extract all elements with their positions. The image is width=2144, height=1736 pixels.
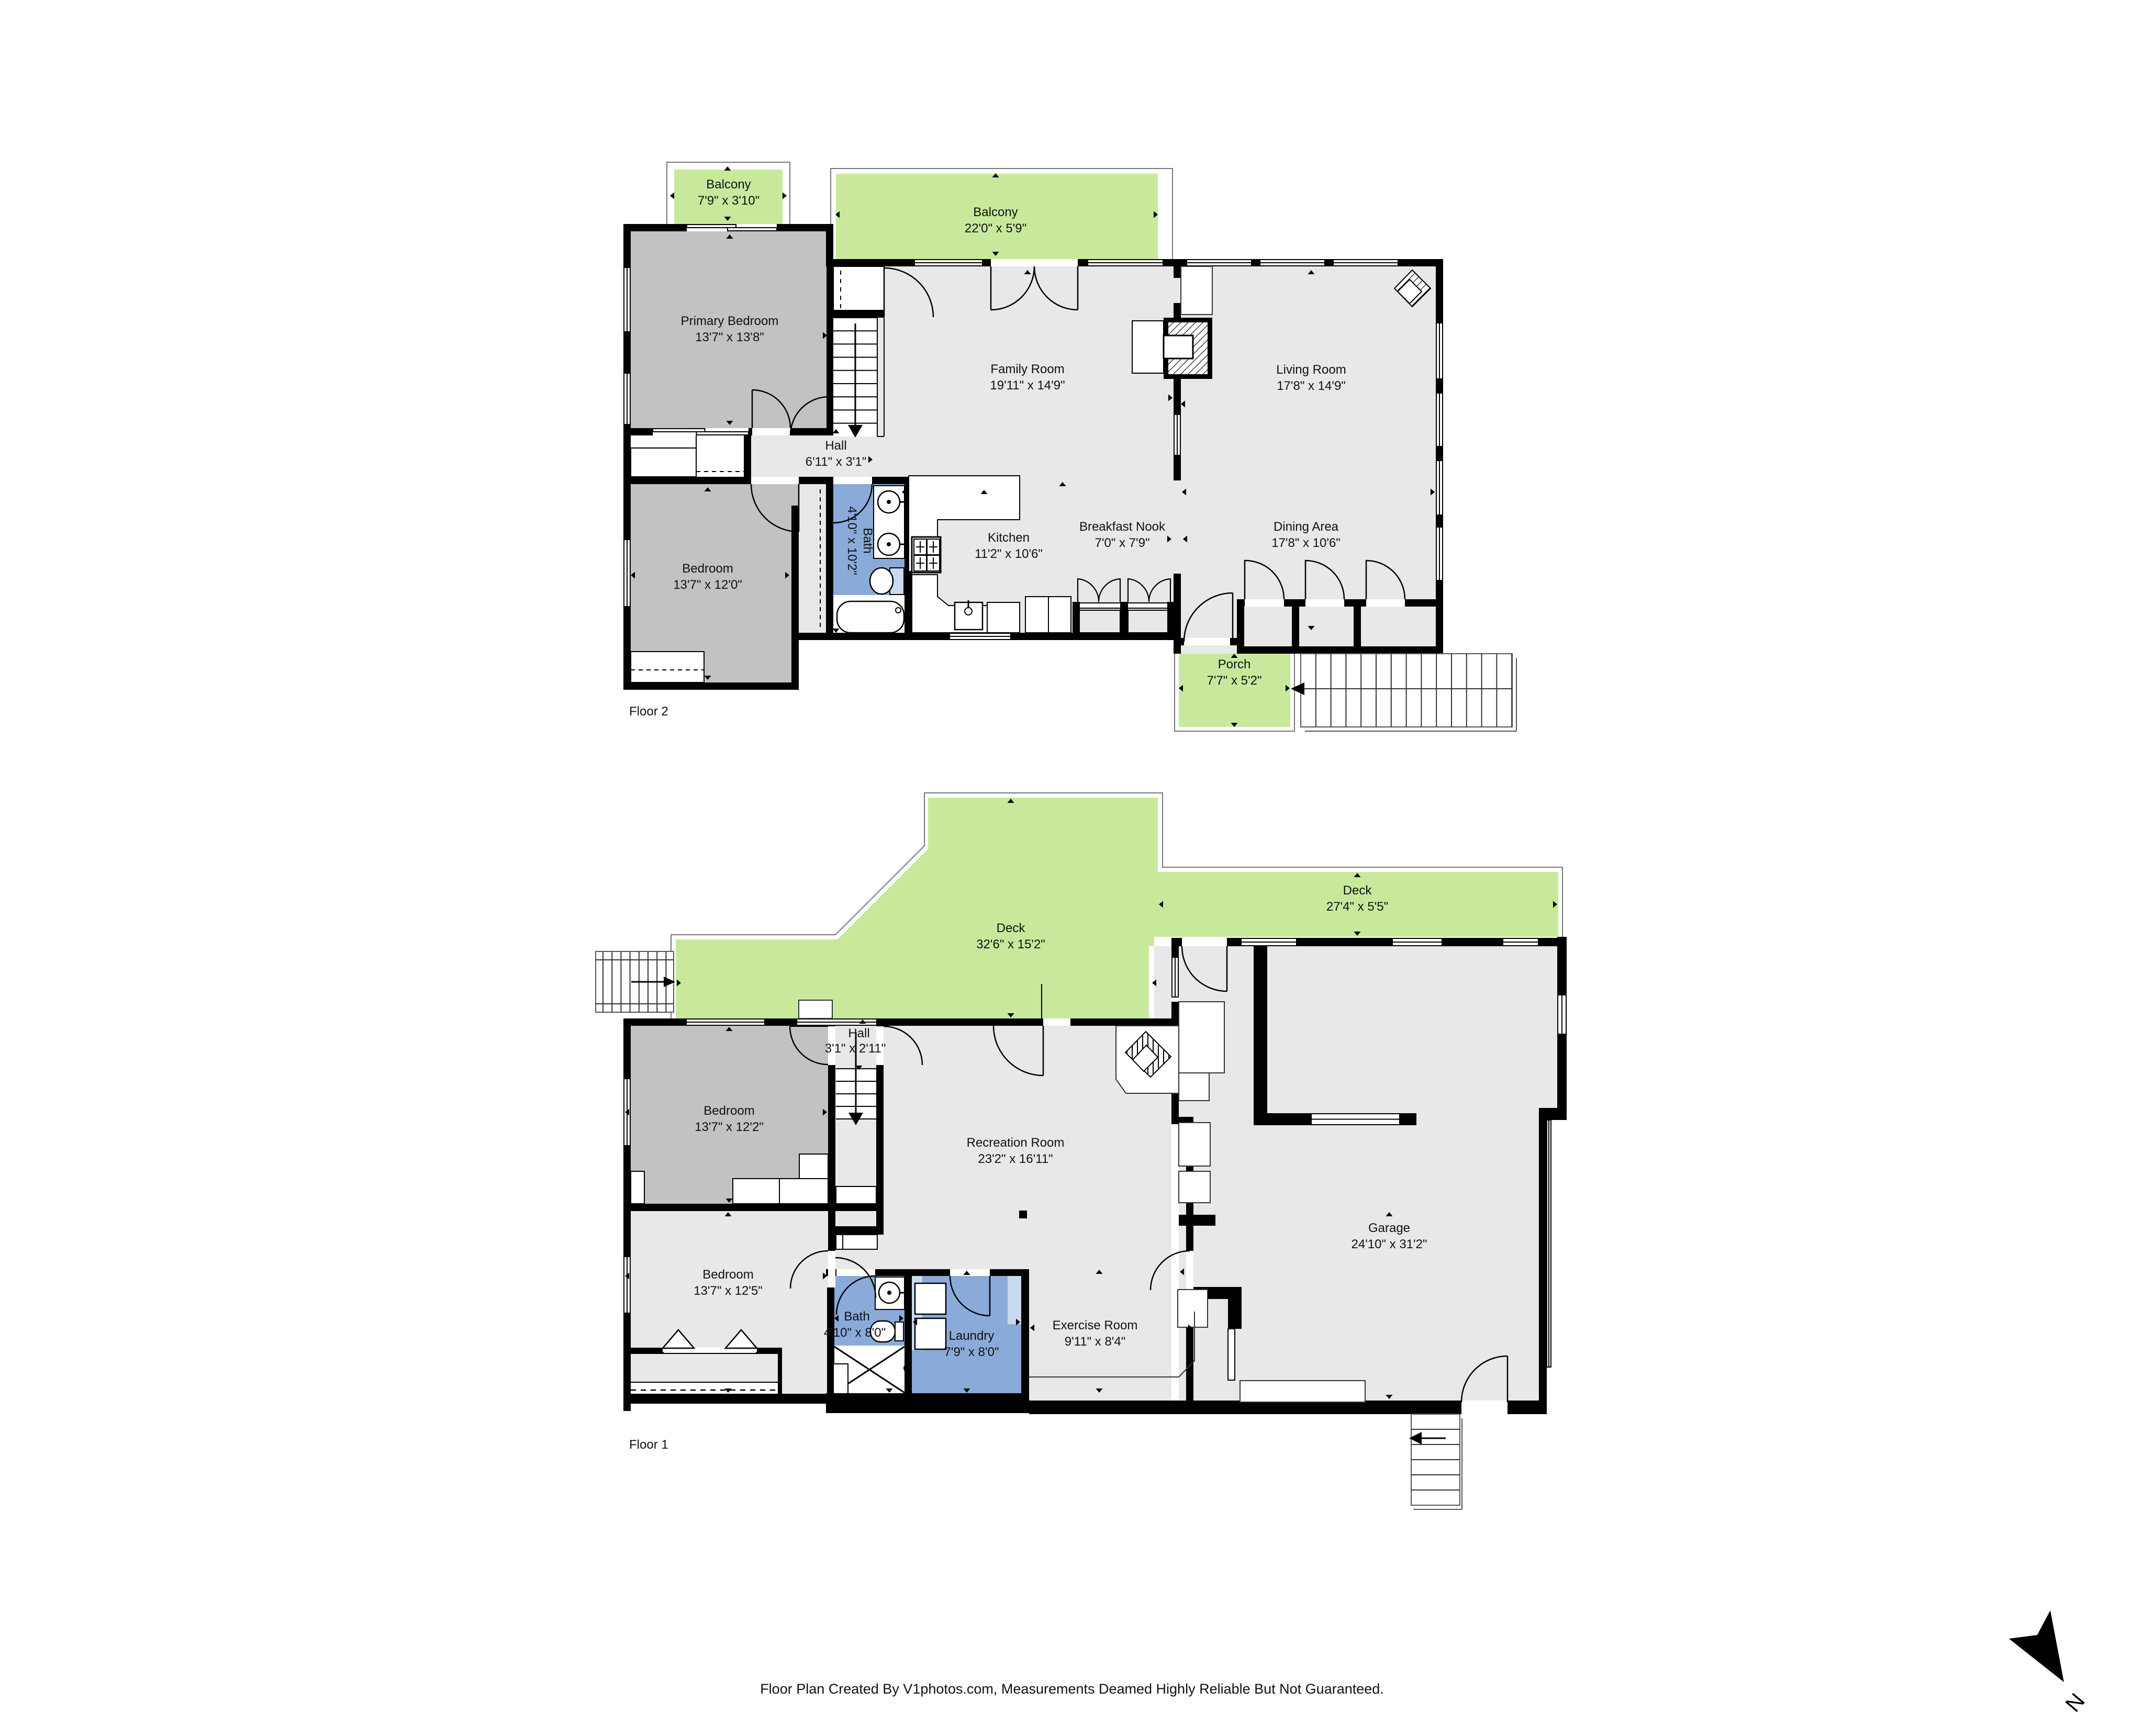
svg-text:17'8" x 10'6": 17'8" x 10'6"	[1271, 536, 1341, 550]
svg-text:24'10" x 31'2": 24'10" x 31'2"	[1352, 1237, 1427, 1251]
svg-text:19'11" x 14'9": 19'11" x 14'9"	[990, 378, 1065, 393]
svg-text:Deck: Deck	[1343, 883, 1372, 898]
svg-text:13'7" x 13'8": 13'7" x 13'8"	[695, 330, 764, 344]
svg-text:Floor 2: Floor 2	[629, 704, 668, 719]
svg-text:Bedroom: Bedroom	[682, 562, 733, 576]
svg-text:Bath: Bath	[861, 528, 875, 553]
svg-text:22'0" x 5'9": 22'0" x 5'9"	[965, 221, 1026, 236]
svg-text:Floor 1: Floor 1	[629, 1438, 668, 1452]
svg-text:Family Room: Family Room	[990, 362, 1064, 376]
svg-text:Primary Bedroom: Primary Bedroom	[681, 314, 779, 328]
svg-text:Deck: Deck	[997, 921, 1026, 935]
svg-text:13'7" x 12'2": 13'7" x 12'2"	[695, 1120, 764, 1134]
svg-text:4'10" x 8'0": 4'10" x 8'0"	[824, 1326, 886, 1340]
svg-text:Porch: Porch	[1218, 657, 1251, 671]
svg-text:13'7" x 12'0": 13'7" x 12'0"	[673, 578, 742, 592]
svg-text:11'2" x 10'6": 11'2" x 10'6"	[975, 547, 1043, 561]
svg-text:Exercise Room: Exercise Room	[1053, 1318, 1138, 1332]
svg-text:13'7" x 12'5": 13'7" x 12'5"	[694, 1284, 763, 1298]
svg-text:Bath: Bath	[844, 1309, 869, 1324]
svg-text:Bedroom: Bedroom	[703, 1104, 754, 1118]
svg-text:Balcony: Balcony	[973, 205, 1018, 219]
svg-text:7'9" x 3'10": 7'9" x 3'10"	[698, 194, 760, 208]
svg-text:Hall: Hall	[825, 439, 846, 453]
svg-text:Kitchen: Kitchen	[988, 531, 1030, 545]
svg-text:6'11" x 3'1": 6'11" x 3'1"	[806, 455, 867, 469]
svg-text:7'9" x 8'0": 7'9" x 8'0"	[944, 1345, 999, 1359]
svg-text:7'7" x 5'2": 7'7" x 5'2"	[1207, 674, 1262, 688]
svg-text:3'1" x 2'11": 3'1" x 2'11"	[825, 1041, 886, 1056]
svg-text:7'0" x 7'9": 7'0" x 7'9"	[1095, 536, 1150, 550]
svg-text:Balcony: Balcony	[706, 177, 751, 192]
svg-text:Bedroom: Bedroom	[702, 1268, 753, 1282]
svg-text:23'2" x 16'11": 23'2" x 16'11"	[978, 1152, 1053, 1166]
svg-text:Floor Plan Created By V1photos: Floor Plan Created By V1photos.com, Meas…	[760, 1681, 1384, 1697]
svg-text:Recreation Room: Recreation Room	[967, 1136, 1065, 1150]
svg-text:17'8" x 14'9": 17'8" x 14'9"	[1277, 379, 1346, 393]
svg-text:Laundry: Laundry	[949, 1329, 995, 1343]
svg-text:Living Room: Living Room	[1276, 363, 1346, 377]
svg-text:32'6" x 15'2": 32'6" x 15'2"	[976, 937, 1045, 951]
svg-text:27'4" x 5'5": 27'4" x 5'5"	[1326, 900, 1388, 914]
svg-text:9'11" x 8'4": 9'11" x 8'4"	[1065, 1335, 1126, 1349]
svg-text:4'10" x 10'2": 4'10" x 10'2"	[845, 506, 859, 575]
svg-text:Breakfast Nook: Breakfast Nook	[1079, 520, 1166, 534]
svg-text:Garage: Garage	[1368, 1221, 1410, 1235]
svg-text:Hall: Hall	[848, 1026, 869, 1040]
svg-text:Dining Area: Dining Area	[1274, 520, 1339, 534]
